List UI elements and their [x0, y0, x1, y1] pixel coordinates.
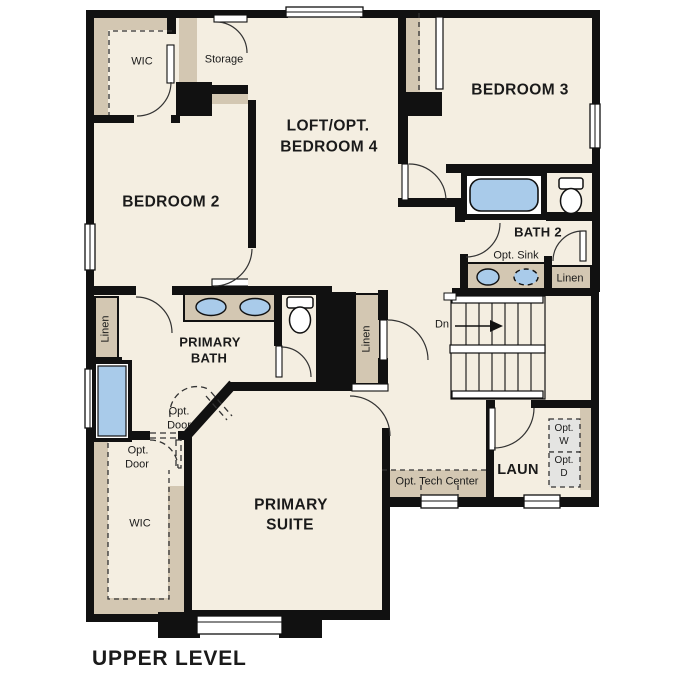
bedroom2-door-leaf: [212, 279, 252, 286]
stair-bottom-nosing: [452, 391, 543, 398]
primary-toilet-door-arc: [281, 347, 311, 377]
opt-door-wic-leaf: [176, 440, 181, 468]
hall-door-leaf: [380, 320, 387, 360]
primary-bath-door-arc: [136, 297, 172, 333]
staircase: [444, 293, 545, 399]
primary-toilet-door-leaf: [276, 346, 282, 377]
primary-toilet: [287, 297, 313, 333]
bath2-toilet: [559, 178, 583, 214]
label-wic-upper: WIC: [131, 57, 152, 68]
laundry-door-leaf: [489, 408, 495, 450]
laundry-door-arc: [494, 408, 534, 448]
bath2-tub: [461, 170, 547, 220]
windows: [85, 7, 600, 634]
bedroom3-door-arc: [409, 164, 446, 200]
label-laundry: LAUN: [497, 463, 538, 478]
bath2-sink: [477, 269, 499, 285]
label-primary-bath-line2: BATH: [191, 352, 227, 365]
storage-door-arc: [216, 22, 247, 53]
label-bedroom3: BEDROOM 3: [471, 82, 568, 98]
fixtures-overlay: [0, 0, 687, 687]
label-bath2: BATH 2: [514, 226, 562, 239]
label-wic-lower: WIC: [129, 519, 150, 530]
label-opt-dryer-line2: D: [560, 469, 567, 479]
label-opt-door1-line2: Door: [167, 421, 191, 432]
label-linen-hall: Linen: [362, 326, 373, 353]
primary-shower: [92, 360, 132, 442]
label-storage: Storage: [205, 55, 244, 66]
label-linen-primary: Linen: [101, 316, 112, 343]
bath2-toilet-bowl: [561, 189, 582, 214]
label-opt-door2-line2: Door: [125, 460, 149, 471]
label-opt-door2-line1: Opt.: [128, 446, 149, 457]
primary-sink-right: [240, 299, 270, 316]
label-opt-dryer-line1: Opt.: [555, 456, 574, 466]
stair-edge-notch: [444, 293, 456, 300]
plan-title: UPPER LEVEL: [92, 647, 247, 671]
wic-upper-rod-dashed: [109, 31, 172, 115]
label-opt-sink: Opt. Sink: [493, 251, 538, 262]
stair-top-nosing: [452, 296, 543, 303]
primary-sink-left: [196, 299, 226, 316]
bath2-toilet-tank: [559, 178, 583, 189]
label-linen-bath2: Linen: [557, 274, 584, 285]
shower-pan: [98, 366, 126, 436]
wic-upper-door-leaf: [167, 45, 174, 83]
storage-door-leaf: [214, 15, 247, 22]
label-stairs-dn: Dn: [435, 320, 449, 331]
primary-suite-door-arc: [350, 396, 390, 436]
hall-door-arc: [388, 320, 428, 360]
floor-plan: WIC Storage BEDROOM 2 LOFT/OPT. BEDROOM …: [0, 0, 687, 687]
opt-door-wic-arc: [150, 440, 178, 468]
bedroom3-closet-door: [436, 17, 443, 89]
primary-suite-door-leaf: [352, 384, 388, 391]
bath2-optional-sink: [514, 269, 538, 285]
window-primary-suite-bottom: [197, 616, 282, 634]
label-opt-door1-line1: Opt.: [169, 407, 190, 418]
primary-toilet-bowl: [290, 307, 311, 333]
stair-direction-arrow-head: [490, 320, 503, 332]
label-opt-washer-line2: W: [559, 437, 568, 447]
label-primary-suite-line2: SUITE: [266, 517, 314, 533]
bath2-linen-door-leaf: [580, 231, 586, 261]
label-loft-line2: BEDROOM 4: [280, 139, 377, 155]
label-bedroom2: BEDROOM 2: [122, 194, 219, 210]
tub-basin: [470, 179, 538, 211]
bedroom3-door-leaf: [402, 164, 408, 200]
label-loft-line1: LOFT/OPT.: [287, 118, 370, 134]
label-opt-washer-line1: Opt.: [555, 424, 574, 434]
stair-landing-rail: [450, 345, 545, 353]
label-primary-bath-line1: PRIMARY: [179, 336, 241, 349]
wic-upper-door-arc: [137, 82, 171, 116]
label-tech-center: Opt. Tech Center: [396, 477, 479, 488]
label-primary-suite-line1: PRIMARY: [254, 497, 328, 513]
